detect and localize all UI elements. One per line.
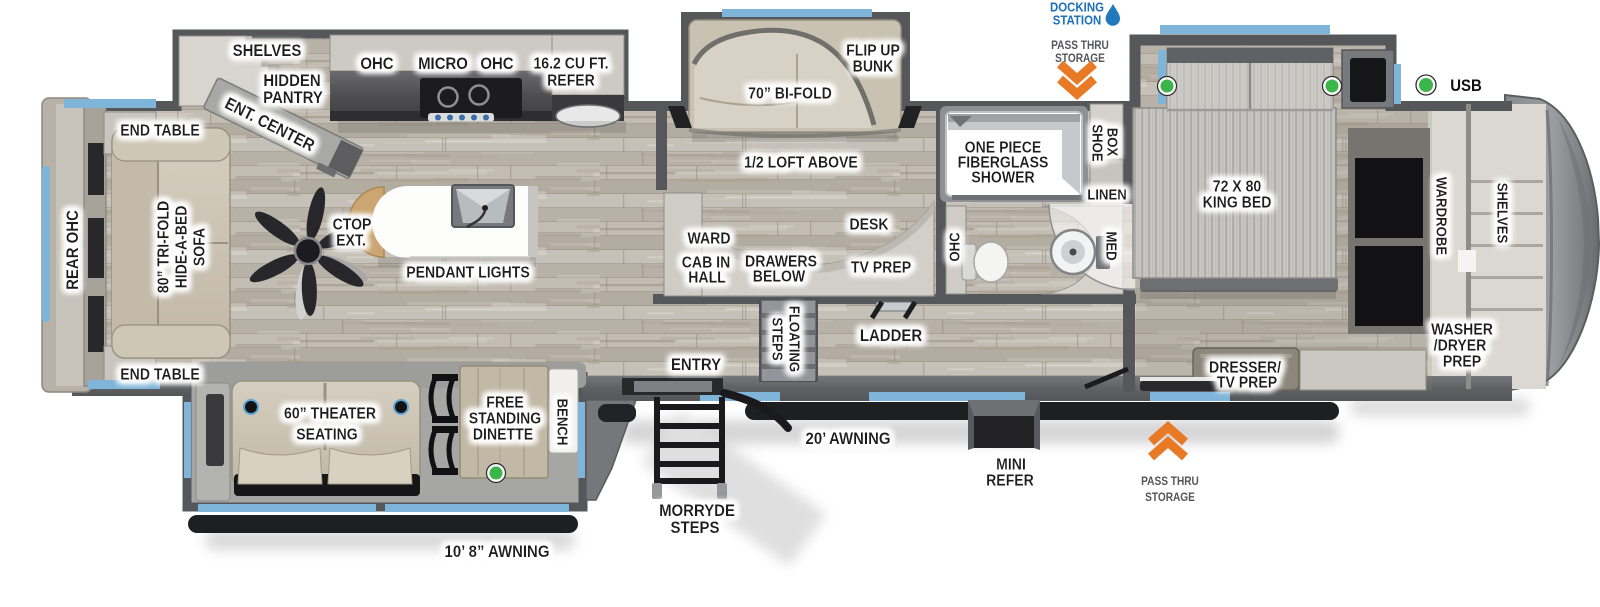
svg-text:OHC: OHC xyxy=(480,55,514,73)
svg-text:LADDER: LADDER xyxy=(860,327,923,345)
svg-text:PANTRY: PANTRY xyxy=(263,89,323,107)
svg-text:MICRO: MICRO xyxy=(418,55,468,73)
svg-text:SOFA: SOFA xyxy=(191,228,209,266)
svg-text:PASS THRU: PASS THRU xyxy=(1141,476,1199,489)
svg-text:BELOW: BELOW xyxy=(753,268,806,286)
svg-text:DESK: DESK xyxy=(849,216,888,234)
svg-text:20’ AWNING: 20’ AWNING xyxy=(805,430,890,448)
svg-text:SHOWER: SHOWER xyxy=(971,169,1034,187)
svg-text:STORAGE: STORAGE xyxy=(1055,53,1105,66)
svg-text:SEATING: SEATING xyxy=(296,426,358,444)
svg-text:60” THEATER: 60” THEATER xyxy=(284,405,376,423)
svg-text:HIDDEN: HIDDEN xyxy=(263,72,320,90)
svg-text:USB: USB xyxy=(1450,77,1482,95)
svg-text:KING BED: KING BED xyxy=(1203,194,1272,212)
svg-text:PREP: PREP xyxy=(1443,353,1481,371)
svg-text:STORAGE: STORAGE xyxy=(1145,492,1195,505)
svg-text:OHC: OHC xyxy=(945,232,962,261)
svg-text:LINEN: LINEN xyxy=(1087,185,1127,202)
svg-text:10’ 8” AWNING: 10’ 8” AWNING xyxy=(445,543,550,561)
svg-text:SHOE: SHOE xyxy=(1090,124,1107,161)
svg-text:REAR OHC: REAR OHC xyxy=(64,210,82,290)
svg-text:BOX: BOX xyxy=(1105,128,1122,157)
svg-text:80” TRI-FOLD: 80” TRI-FOLD xyxy=(155,201,173,293)
svg-text:PASS THRU: PASS THRU xyxy=(1051,40,1109,53)
svg-text:ENTRY: ENTRY xyxy=(671,356,721,374)
svg-text:70” BI-FOLD: 70” BI-FOLD xyxy=(748,85,832,103)
svg-text:WARD: WARD xyxy=(687,230,730,248)
svg-text:STEPS: STEPS xyxy=(670,519,719,537)
svg-text:MORRYDE: MORRYDE xyxy=(659,502,735,520)
svg-text:OHC: OHC xyxy=(360,55,394,73)
svg-text:FLOATING: FLOATING xyxy=(787,306,804,372)
svg-text:EXT.: EXT. xyxy=(336,232,366,250)
svg-text:TV PREP: TV PREP xyxy=(1217,374,1277,392)
svg-text:MED: MED xyxy=(1104,231,1121,260)
svg-text:DINETTE: DINETTE xyxy=(473,426,533,444)
svg-text:END TABLE: END TABLE xyxy=(120,366,199,384)
svg-text:PENDANT LIGHTS: PENDANT LIGHTS xyxy=(406,264,530,282)
svg-text:HIDE-A-BED: HIDE-A-BED xyxy=(173,205,191,288)
svg-text:BUNK: BUNK xyxy=(853,58,894,76)
svg-text:REFER: REFER xyxy=(986,472,1034,490)
svg-text:SHELVES: SHELVES xyxy=(233,42,302,60)
svg-text:STATION: STATION xyxy=(1053,13,1102,28)
svg-text:16.2 CU FT.: 16.2 CU FT. xyxy=(533,55,608,73)
svg-text:TV PREP: TV PREP xyxy=(851,259,911,277)
svg-text:SHELVES: SHELVES xyxy=(1495,183,1512,244)
svg-text:WARDROBE: WARDROBE xyxy=(1434,177,1451,255)
svg-text:REFER: REFER xyxy=(547,72,595,90)
svg-text:BENCH: BENCH xyxy=(555,399,572,446)
svg-text:1/2 LOFT ABOVE: 1/2 LOFT ABOVE xyxy=(744,154,858,172)
svg-text:STEPS: STEPS xyxy=(770,317,787,360)
svg-text:HALL: HALL xyxy=(688,269,726,287)
svg-text:END TABLE: END TABLE xyxy=(120,122,199,140)
